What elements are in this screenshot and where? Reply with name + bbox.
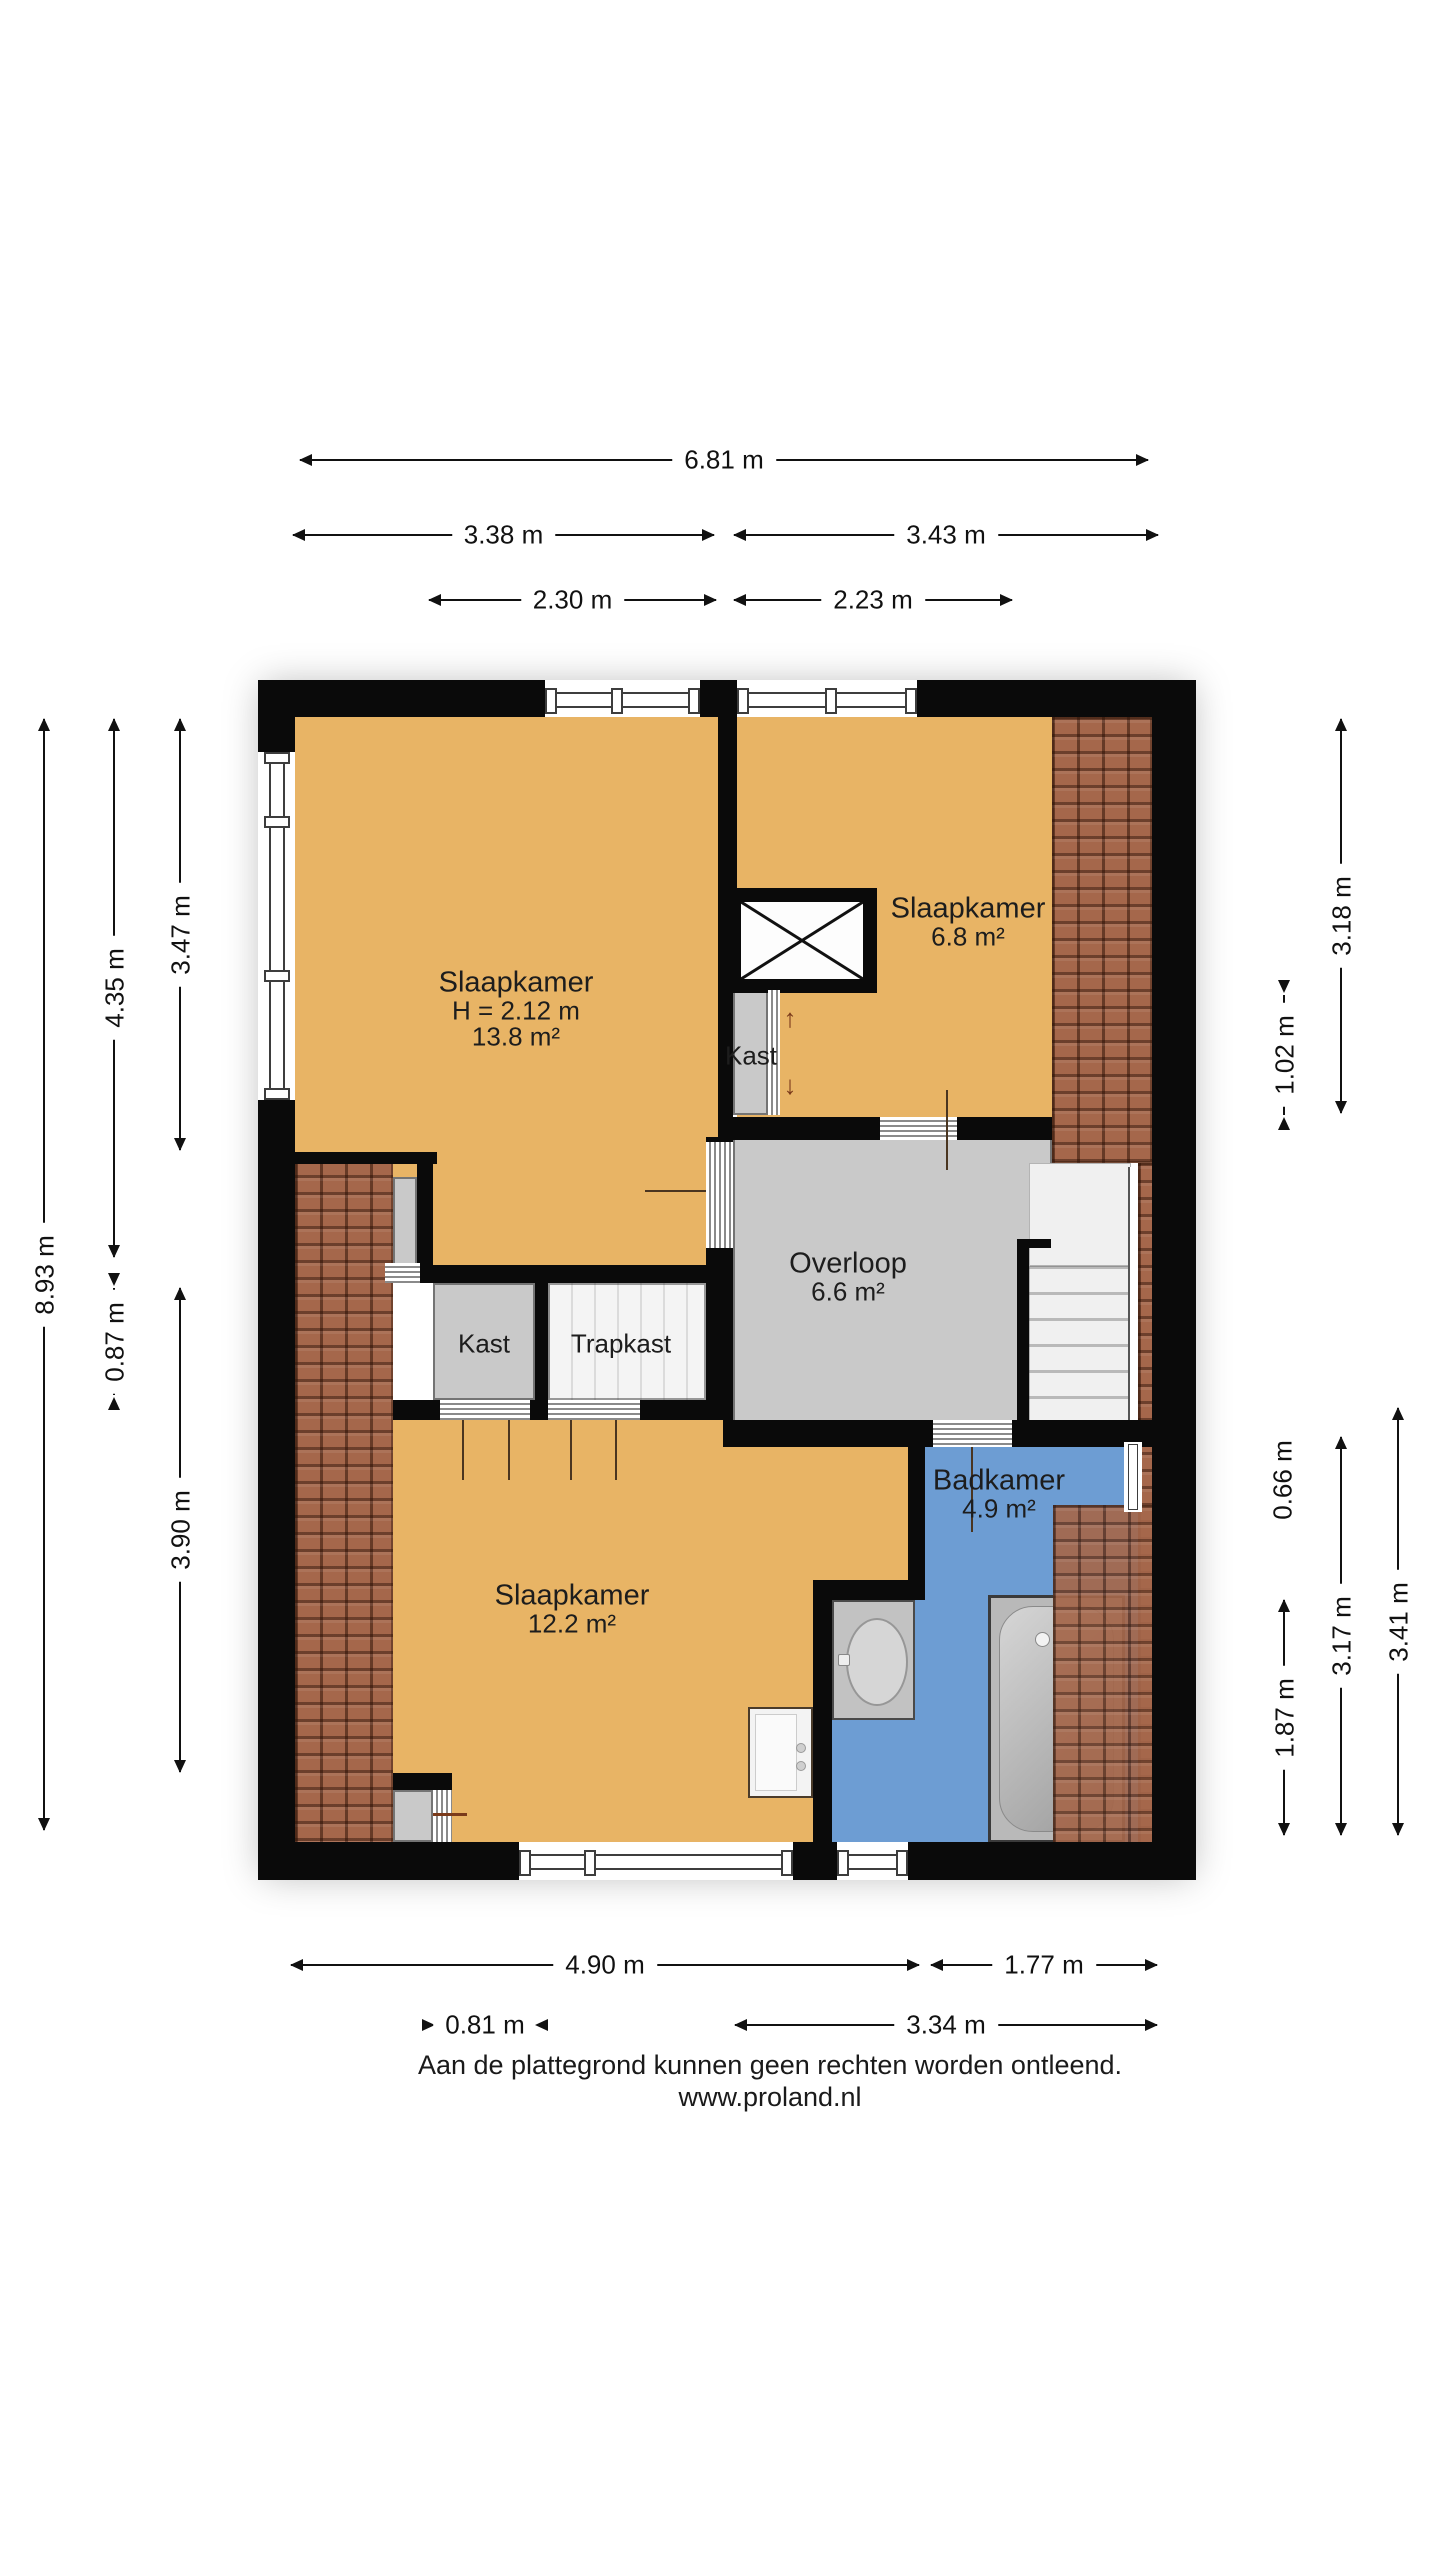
door-stair-closet-swing-2: [615, 1420, 617, 1480]
window-bottom-bathroom: [837, 1842, 908, 1880]
roof-tiles-top-right: [1052, 717, 1152, 1163]
door-niche-bottomleft-line: [433, 1813, 467, 1816]
shaft-inner: [741, 902, 863, 979]
wall-closet-block-top: [433, 1265, 706, 1283]
door-bathroom: [933, 1420, 1012, 1447]
bathroom-sink: [832, 1600, 915, 1720]
dim-left-inner-upper: 3.47 m: [179, 719, 181, 1150]
room-label-closet-small: Kast: [725, 1041, 777, 1072]
shaft-box: [727, 888, 877, 993]
dim-left-middle: 0.87 m: [113, 1288, 115, 1395]
dim-right-lower: 3.17 m: [1340, 1437, 1342, 1835]
dim-left-upper: 4.35 m: [113, 719, 115, 1257]
door-stair-closet: [548, 1400, 640, 1420]
footer-website: www.proland.nl: [300, 2082, 1240, 2113]
door-niche-bottomleft: [433, 1790, 452, 1842]
room-label-bedroom-small-area: 6.8 m²: [931, 922, 1005, 953]
wall-niche-top-line: [295, 1152, 437, 1164]
door-bedroom-large-swing: [645, 1190, 706, 1192]
door-bedroom-small-swing: [946, 1090, 948, 1170]
footer-disclaimer: Aan de plattegrond kunnen geen rechten w…: [300, 2050, 1240, 2081]
door-closet-swing-1: [462, 1420, 464, 1480]
dim-right-upper: 3.18 m: [1340, 719, 1342, 1113]
stairs-side-lip: [1017, 1239, 1051, 1248]
dim-right-lower-small: 1.87 m: [1283, 1600, 1285, 1835]
bathtub-faucet: [1035, 1632, 1050, 1647]
door-niche-mid: [385, 1263, 420, 1283]
window-top-left: [545, 680, 700, 717]
stairs-treads: [1029, 1266, 1131, 1423]
dim-bottom-right: 1.77 m: [931, 1964, 1157, 1966]
window-left: [258, 752, 295, 1100]
dim-top-inner-right: 2.23 m: [734, 599, 1012, 601]
room-label-bedroom-bottom-area: 12.2 m²: [528, 1609, 616, 1640]
room-label-closet: Kast: [458, 1329, 510, 1360]
dim-bottom-lower-right: 3.34 m: [735, 2024, 1157, 2026]
dim-right-upper-small: 1.02 m: [1283, 995, 1285, 1115]
floor-niche-bottomleft: [393, 1790, 433, 1842]
dim-bottom-left: 4.90 m: [291, 1964, 919, 1966]
dim-right-lower-outer: 3.41 m: [1397, 1408, 1399, 1835]
wall-closet-divider: [535, 1283, 548, 1400]
dim-top-inner-left: 2.30 m: [429, 599, 716, 601]
dim-top-left: 3.38 m: [293, 534, 714, 536]
wall-bathroom-left-lower: [813, 1600, 832, 1842]
room-label-bedroom-large-area: 13.8 m²: [472, 1022, 560, 1053]
floor-niche-mid: [393, 1177, 417, 1265]
wall-top: [258, 680, 1196, 717]
room-label-landing-area: 6.6 m²: [811, 1277, 885, 1308]
window-right-bathroom: [1124, 1442, 1142, 1512]
floor-landing: [733, 1137, 1052, 1425]
wall-bathroom-jog: [813, 1580, 925, 1600]
room-label-bathroom-area: 4.9 m²: [962, 1494, 1036, 1525]
slide-down-icon: ↓: [784, 1072, 797, 1098]
door-bedroom-large: [706, 1142, 733, 1248]
roof-tiles-left: [295, 1158, 393, 1845]
dim-right-small: 0.66 m: [1267, 1434, 1300, 1526]
dim-top-right: 3.43 m: [734, 534, 1158, 536]
bedroom-sink: [748, 1707, 813, 1798]
sink-faucet: [838, 1654, 850, 1666]
door-stair-closet-swing-1: [570, 1420, 572, 1480]
room-label-stair-closet: Trapkast: [571, 1329, 671, 1360]
dim-left-inner-lower: 3.90 m: [179, 1288, 181, 1772]
door-closet-swing-2: [508, 1420, 510, 1480]
wall-bathroom-left-upper: [908, 1420, 925, 1600]
window-top-right: [737, 680, 917, 717]
shaft-x-icon: [741, 902, 863, 979]
wall-right: [1152, 680, 1196, 1845]
door-closet: [440, 1400, 530, 1420]
stairs-landing: [1029, 1163, 1131, 1266]
roof-tiles-bathroom: [1053, 1505, 1155, 1845]
dim-top-total: 6.81 m: [300, 459, 1148, 461]
dim-bottom-small: 0.81 m: [437, 2024, 533, 2026]
window-bottom-bedroom: [519, 1842, 793, 1880]
floorplan-page: ↑ ↓ Slaapkamer H = 2.12 m 13.8 m² Slaapk…: [0, 0, 1440, 2560]
stairs-side-wall: [1017, 1239, 1029, 1425]
dim-left-total: 8.93 m: [43, 719, 45, 1830]
slide-up-icon: ↑: [784, 1005, 797, 1031]
